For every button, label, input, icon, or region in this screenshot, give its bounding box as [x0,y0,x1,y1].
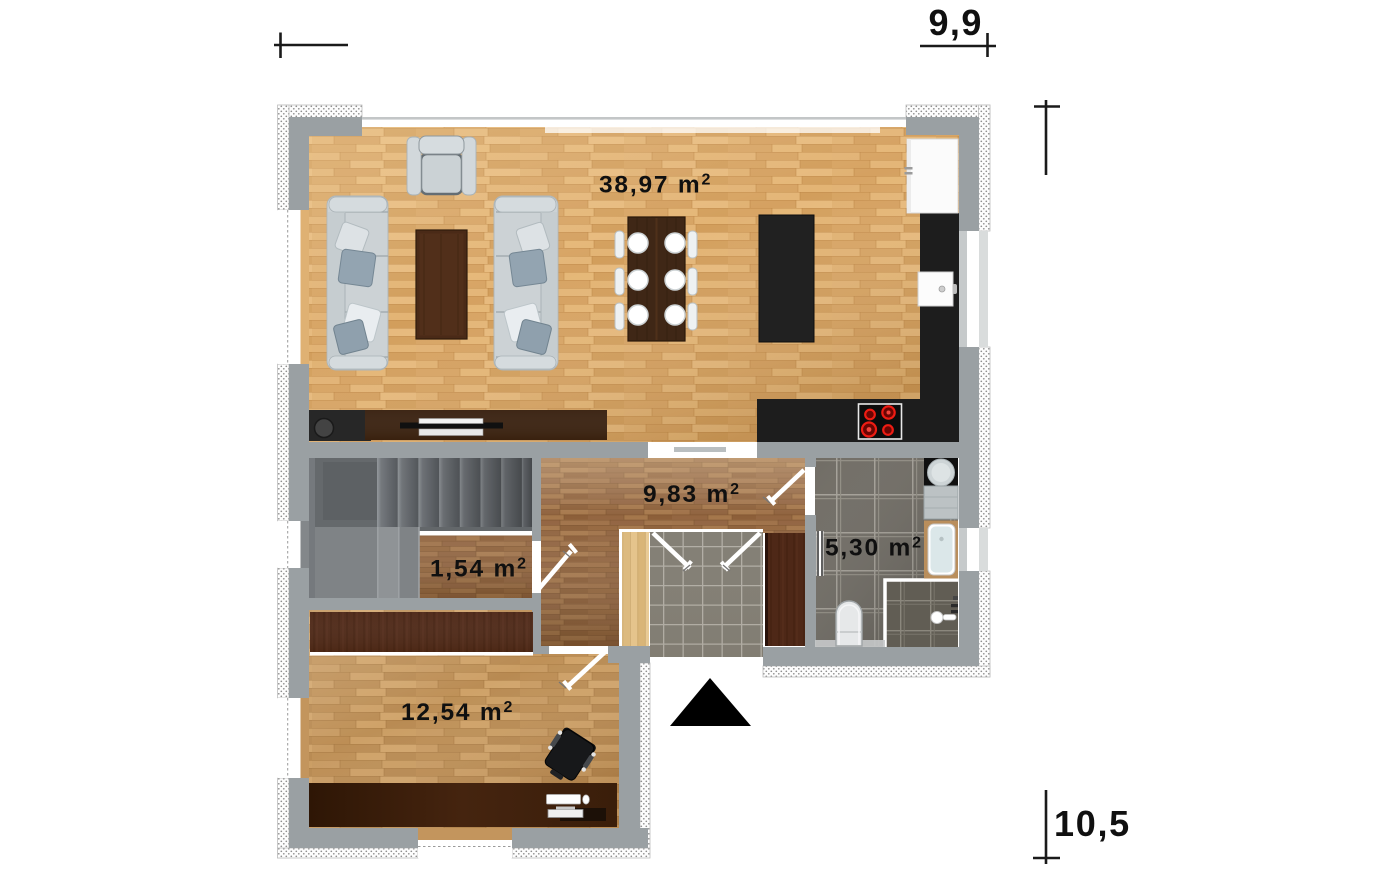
svg-text:38,97 m2: 38,97 m2 [599,172,711,199]
svg-text:12,54 m2: 12,54 m2 [401,699,513,726]
svg-text:5,30 m2: 5,30 m2 [825,535,921,562]
svg-text:10,5: 10,5 [1054,803,1131,844]
svg-text:9,83 m2: 9,83 m2 [643,481,739,508]
svg-text:9,9: 9,9 [929,2,983,43]
svg-text:1,54 m2: 1,54 m2 [430,556,526,583]
